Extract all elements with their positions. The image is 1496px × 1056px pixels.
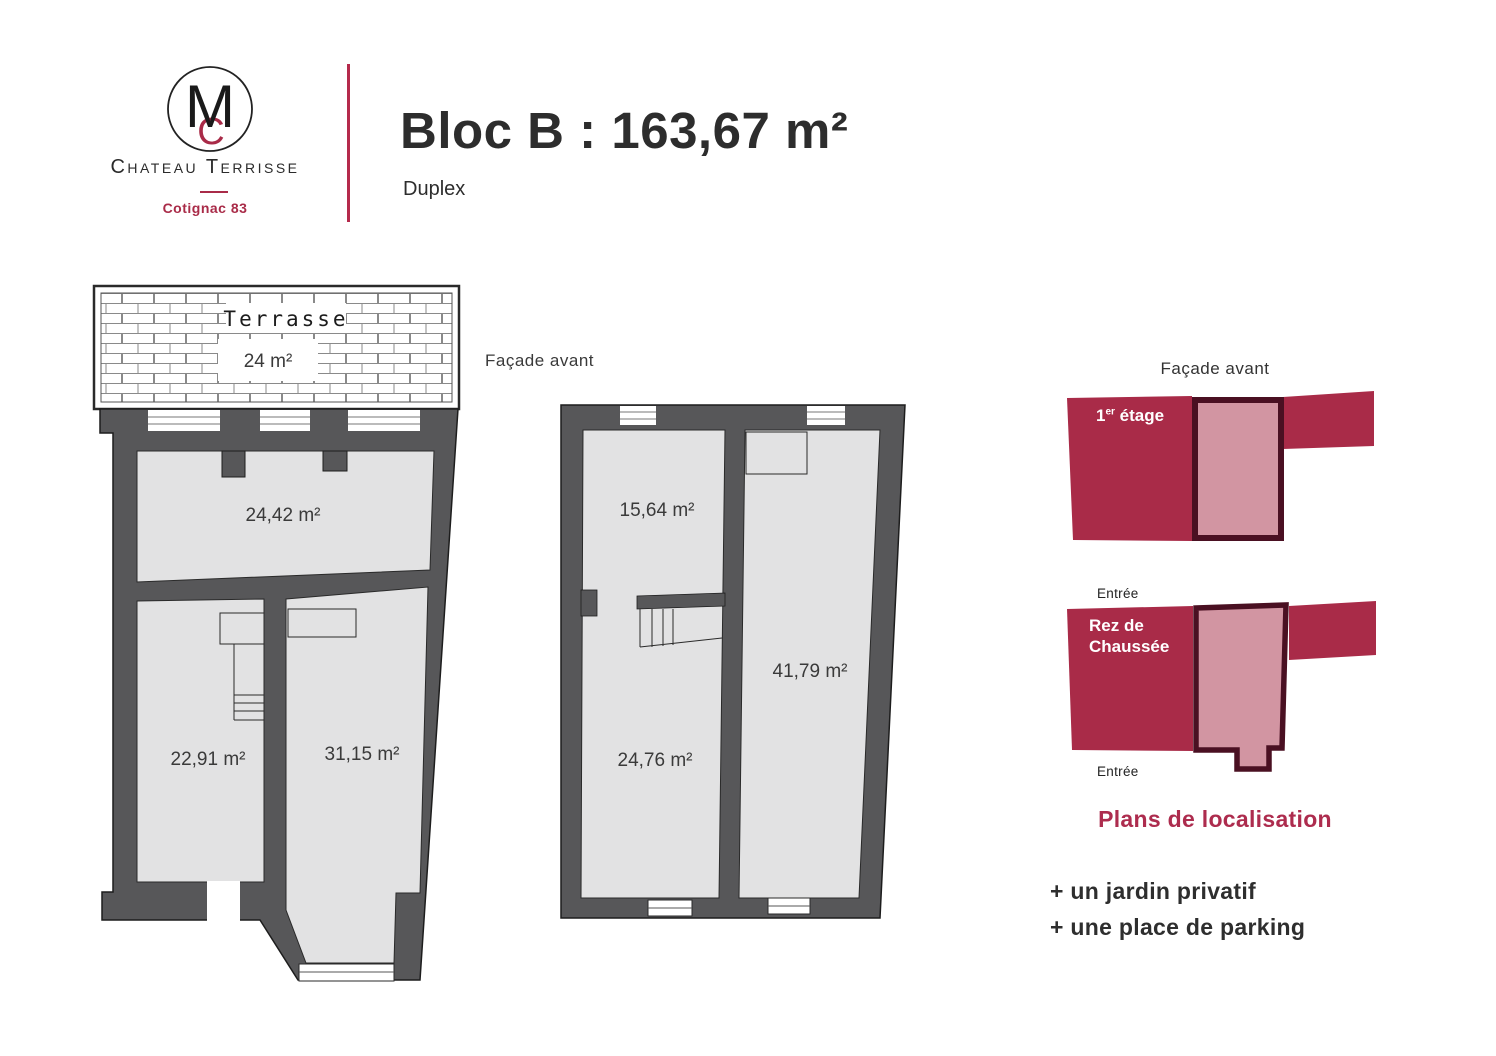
wall-stub xyxy=(323,451,347,471)
amenity-garden: + un jardin privatif xyxy=(1050,878,1256,905)
brand-logo: C M xyxy=(158,62,262,166)
location-facade-label: Façade avant xyxy=(1105,359,1325,379)
page-subtitle: Duplex xyxy=(403,178,465,201)
terrace-area: Terrasse 24 m² xyxy=(94,286,459,409)
first-floor-sup: er xyxy=(1105,406,1114,417)
facade-windows xyxy=(148,410,420,431)
brand-name: Chateau Terrisse xyxy=(88,156,322,179)
room-area-label: 24,76 m² xyxy=(618,750,693,771)
wall-stub xyxy=(581,590,597,616)
room-area-label: 22,91 m² xyxy=(171,749,246,770)
terrace-label: Terrasse xyxy=(223,307,348,331)
ground-floor-label-line1: Rez de xyxy=(1089,615,1169,636)
first-floor-label: 1er étage xyxy=(1096,406,1164,426)
entrance-label-top: Entrée xyxy=(1097,586,1139,601)
brand-location: Cotignac 83 xyxy=(88,200,322,216)
room-area-label: 41,79 m² xyxy=(773,661,848,682)
logo-monogram-m: M xyxy=(185,73,235,140)
page-title: Bloc B : 163,67 m² xyxy=(400,101,848,160)
brand-underline xyxy=(200,191,228,193)
floor-plan-other-level: 15,64 m² 41,79 m² 24,76 m² xyxy=(553,400,913,925)
ground-floor-label-line2: Chaussée xyxy=(1089,636,1169,657)
floor-plan-terrace-level: Terrasse 24 m² xyxy=(90,283,470,988)
door-opening xyxy=(207,881,240,921)
room-area-label: 31,15 m² xyxy=(325,744,400,765)
entrance-label-bottom: Entrée xyxy=(1097,764,1139,779)
plan-sheet: C M Chateau Terrisse Cotignac 83 Bloc B … xyxy=(0,0,1496,1056)
ground-floor-label: Rez de Chaussée xyxy=(1089,615,1169,658)
location-plans xyxy=(1050,385,1390,785)
first-floor-rest: étage xyxy=(1115,406,1164,425)
terrace-area-label: 24 m² xyxy=(244,351,293,372)
room-area-label: 15,64 m² xyxy=(620,500,695,521)
amenity-parking: + une place de parking xyxy=(1050,914,1305,941)
room-area-label: 24,42 m² xyxy=(246,505,321,526)
header-divider xyxy=(347,64,350,222)
location-plans-caption: Plans de localisation xyxy=(1085,806,1345,833)
bottom-window xyxy=(299,964,394,981)
stair-wall xyxy=(637,593,725,609)
facade-front-label: Façade avant xyxy=(485,351,594,371)
wall-stub xyxy=(222,451,245,477)
